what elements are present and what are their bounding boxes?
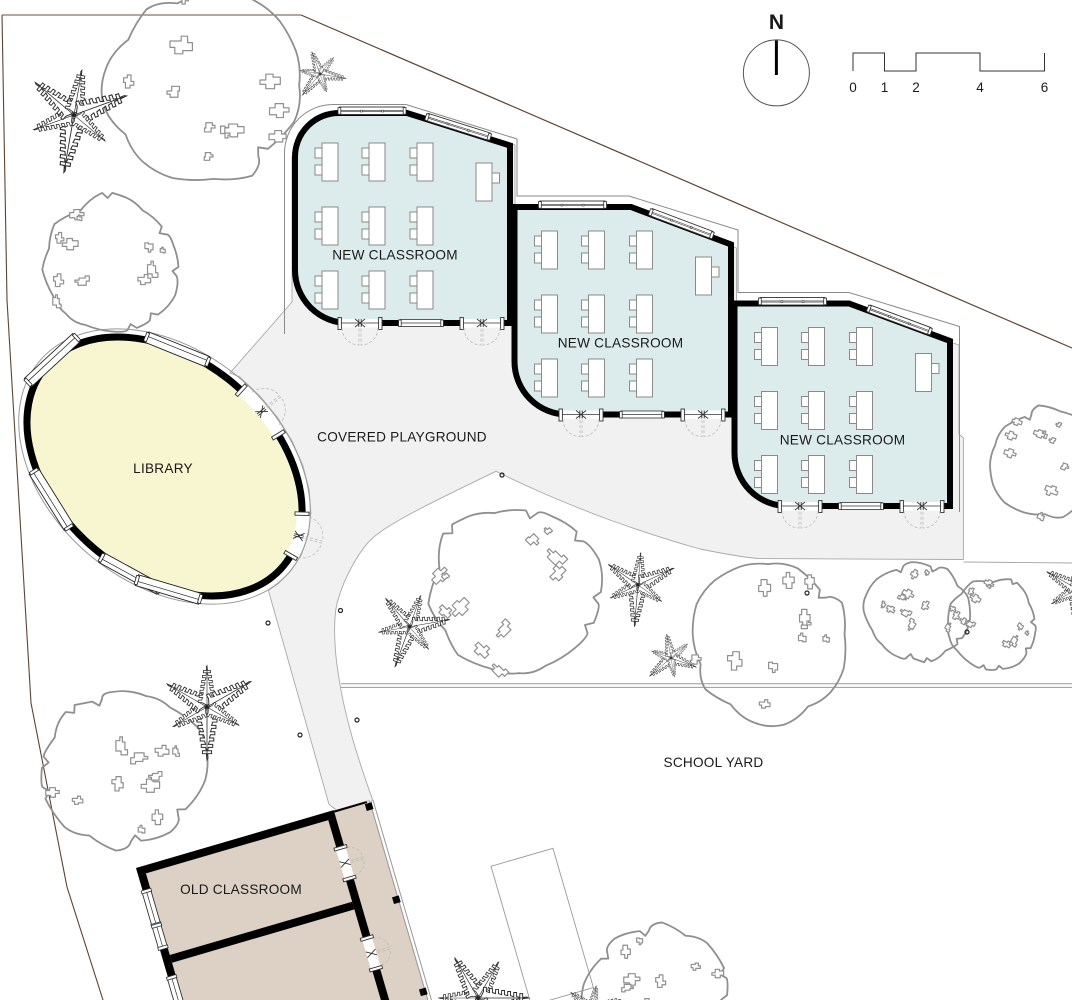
svg-text:LIBRARY: LIBRARY: [133, 461, 193, 476]
svg-text:2: 2: [912, 80, 920, 95]
svg-text:SCHOOL YARD: SCHOOL YARD: [664, 755, 764, 770]
svg-text:6: 6: [1041, 80, 1049, 95]
svg-text:4: 4: [976, 80, 984, 95]
svg-text:NEW CLASSROOM: NEW CLASSROOM: [332, 248, 458, 263]
svg-text:1: 1: [881, 80, 889, 95]
svg-text:NEW CLASSROOM: NEW CLASSROOM: [558, 336, 684, 351]
svg-text:OLD CLASSROOM: OLD CLASSROOM: [180, 882, 302, 897]
svg-text:COVERED PLAYGROUND: COVERED PLAYGROUND: [317, 430, 487, 445]
svg-text:N: N: [769, 11, 784, 34]
svg-text:NEW CLASSROOM: NEW CLASSROOM: [780, 433, 906, 448]
svg-text:0: 0: [849, 80, 857, 95]
